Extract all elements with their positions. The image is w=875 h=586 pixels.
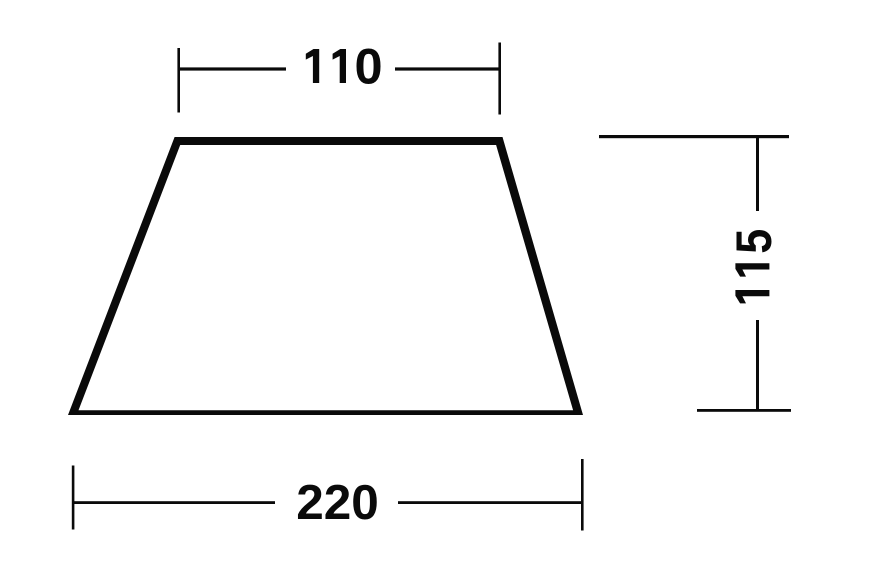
- svg-text:0: 0: [354, 38, 382, 95]
- svg-text:5: 5: [727, 229, 783, 254]
- svg-text:220: 220: [296, 475, 379, 530]
